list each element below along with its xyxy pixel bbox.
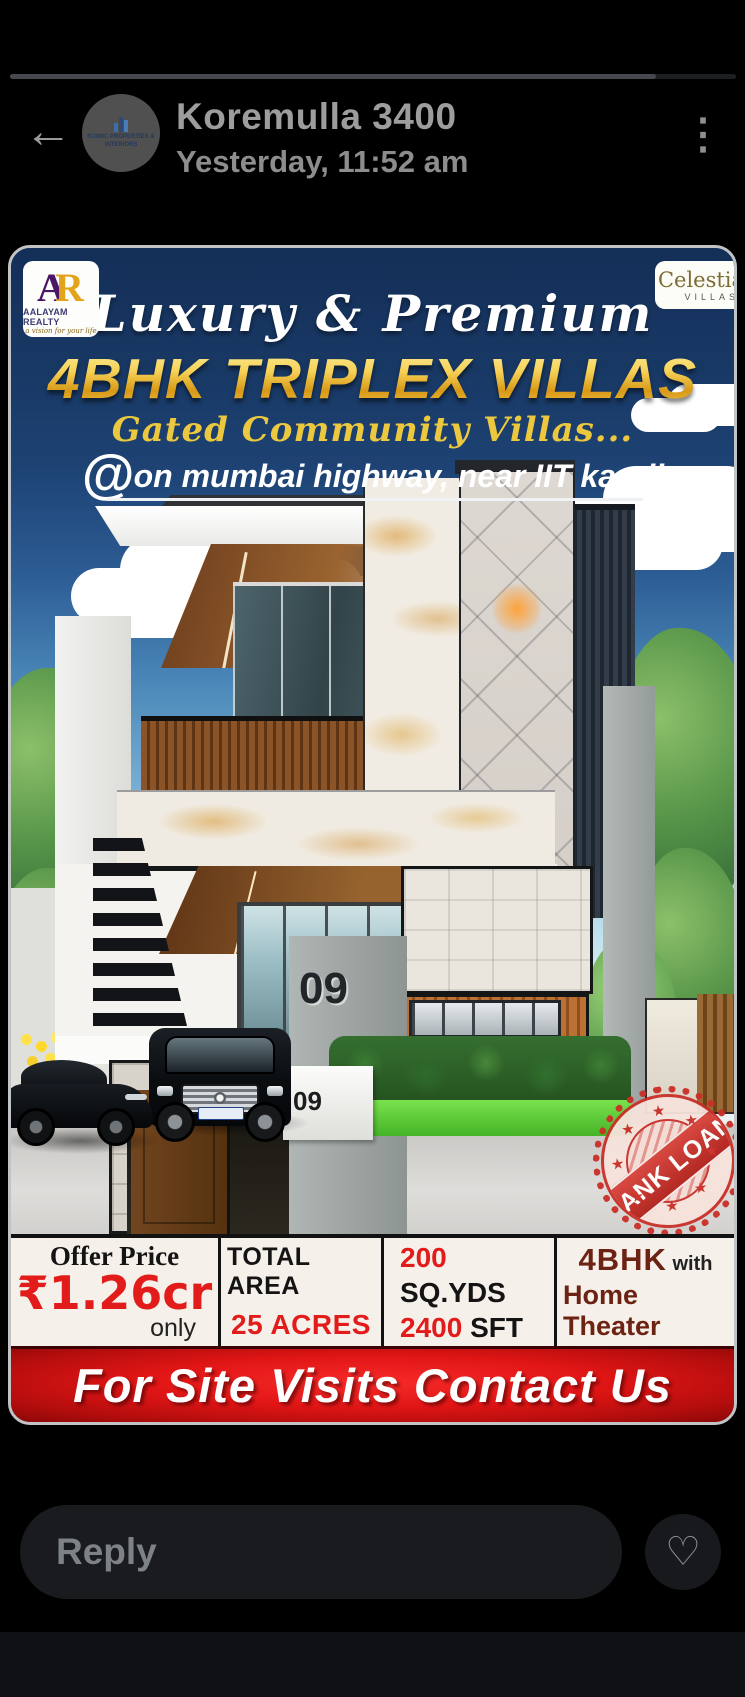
status-progress-fill [10, 74, 656, 79]
location-text: on mumbai highway, near IIT kandi [134, 458, 664, 494]
clerestory-windows [409, 1000, 561, 1038]
buildings-icon [114, 116, 128, 132]
plot-size-line2: 2400 SFT [400, 1310, 523, 1345]
balcony-wood-railing [141, 716, 377, 801]
wheel [245, 1102, 285, 1142]
realtor-logo: A R AALAYAM REALTY a vision for your lif… [23, 261, 99, 337]
plot-size-value2: 2400 [400, 1312, 462, 1343]
bank-loan-stamp: BANK LOAN ★ ★ ★ ★ ★ ★ ★ ★ [586, 1079, 734, 1234]
contact-banner-text: For Site Visits Contact Us [73, 1358, 672, 1413]
offer-price-suffix: only [150, 1314, 196, 1343]
bhk-strong: 4BHK [579, 1242, 667, 1277]
reply-input[interactable] [20, 1505, 622, 1599]
house-number-large: 09 [299, 964, 348, 1014]
info-cell-plot-size: 200 SQ.YDS 2400 SFT [384, 1238, 557, 1346]
total-area-value: 25 ACRES [231, 1309, 371, 1341]
info-cell-offer-price: Offer Price ₹1.26cr only [11, 1238, 221, 1346]
star-icon: ★ [630, 1189, 645, 1206]
wheel [97, 1108, 135, 1146]
suv-headlight [157, 1086, 173, 1096]
realtor-monogram: A R [33, 264, 89, 306]
balcony-marble-beam [117, 790, 555, 871]
realtor-tagline: a vision for your life [25, 327, 96, 335]
status-progress-bar [10, 74, 736, 79]
avatar-text-line1: ICONIC PROPERTIES & [87, 134, 154, 142]
suv-car [149, 1028, 291, 1138]
offer-price-value: ₹1.26cr [17, 1272, 212, 1316]
monogram-r: R [55, 264, 84, 311]
star-icon: ★ [693, 1180, 708, 1197]
poster-info-bar: Offer Price ₹1.26cr only TOTAL AREA 25 A… [11, 1234, 734, 1346]
suv-windshield [165, 1036, 275, 1074]
kebab-menu-icon: ⋮ [682, 113, 724, 155]
project-sub: VILLAS [684, 292, 734, 302]
star-icon: ★ [684, 1112, 699, 1129]
star-icon: ★ [620, 1121, 635, 1138]
menu-button[interactable]: ⋮ [677, 104, 729, 164]
info-cell-bhk: 4BHK with Home Theater [557, 1238, 734, 1346]
star-icon: ★ [610, 1156, 625, 1173]
contact-banner: For Site Visits Contact Us [11, 1346, 734, 1422]
plot-size-unit2: SFT [462, 1312, 523, 1343]
garden-hedge [329, 1036, 631, 1106]
star-icon: ★ [704, 1143, 719, 1160]
status-screen: ← ICONIC PROPERTIES & INTERIORS Koremull… [0, 0, 745, 1697]
location-underline [107, 498, 643, 501]
project-name: Celestia [658, 268, 734, 292]
project-logo: Celestia VILLAS [655, 261, 734, 309]
poster-main-title: 4BHK TRIPLEX VILLAS [11, 346, 734, 412]
bhk-rest: with [667, 1253, 713, 1275]
wheel [155, 1102, 195, 1142]
poster-art: 09 09 [11, 248, 734, 1234]
plot-size-unit1: SQ.YDS [400, 1277, 506, 1308]
suv-headlight [267, 1086, 283, 1096]
wheel [17, 1108, 55, 1146]
star-icon: ★ [651, 1103, 666, 1120]
license-plate [198, 1107, 244, 1120]
bhk-line2: Home Theater [563, 1280, 728, 1342]
avatar[interactable]: ICONIC PROPERTIES & INTERIORS [82, 94, 160, 172]
avatar-text-line2: INTERIORS [105, 142, 138, 150]
info-cell-total-area: TOTAL AREA 25 ACRES [221, 1238, 384, 1346]
car-brand-emblem [214, 1092, 226, 1104]
sports-car [11, 1060, 153, 1146]
stone-panel-right [401, 866, 593, 994]
plot-size-line1: 200 SQ.YDS [400, 1240, 548, 1310]
like-button[interactable]: ♡ [645, 1514, 721, 1590]
poster-location: @on mumbai highway, near IIT kandi [11, 444, 734, 506]
star-icon: ★ [664, 1198, 679, 1215]
status-image-poster[interactable]: 09 09 [8, 245, 737, 1425]
heart-icon: ♡ [665, 1532, 701, 1572]
bhk-line1: 4BHK with [579, 1242, 713, 1278]
total-area-label: TOTAL AREA [227, 1243, 375, 1301]
status-timestamp: Yesterday, 11:52 am [176, 144, 468, 180]
plot-size-value1: 200 [400, 1242, 447, 1273]
status-title: Koremulla 3400 [176, 96, 457, 138]
gesture-navigation-area[interactable] [0, 1632, 745, 1697]
back-icon: ← [24, 108, 72, 156]
flowers [21, 1034, 32, 1045]
poster-script-title: Luxury & Premium [11, 284, 734, 343]
back-button[interactable]: ← [18, 102, 78, 162]
at-symbol: @ [81, 445, 134, 505]
